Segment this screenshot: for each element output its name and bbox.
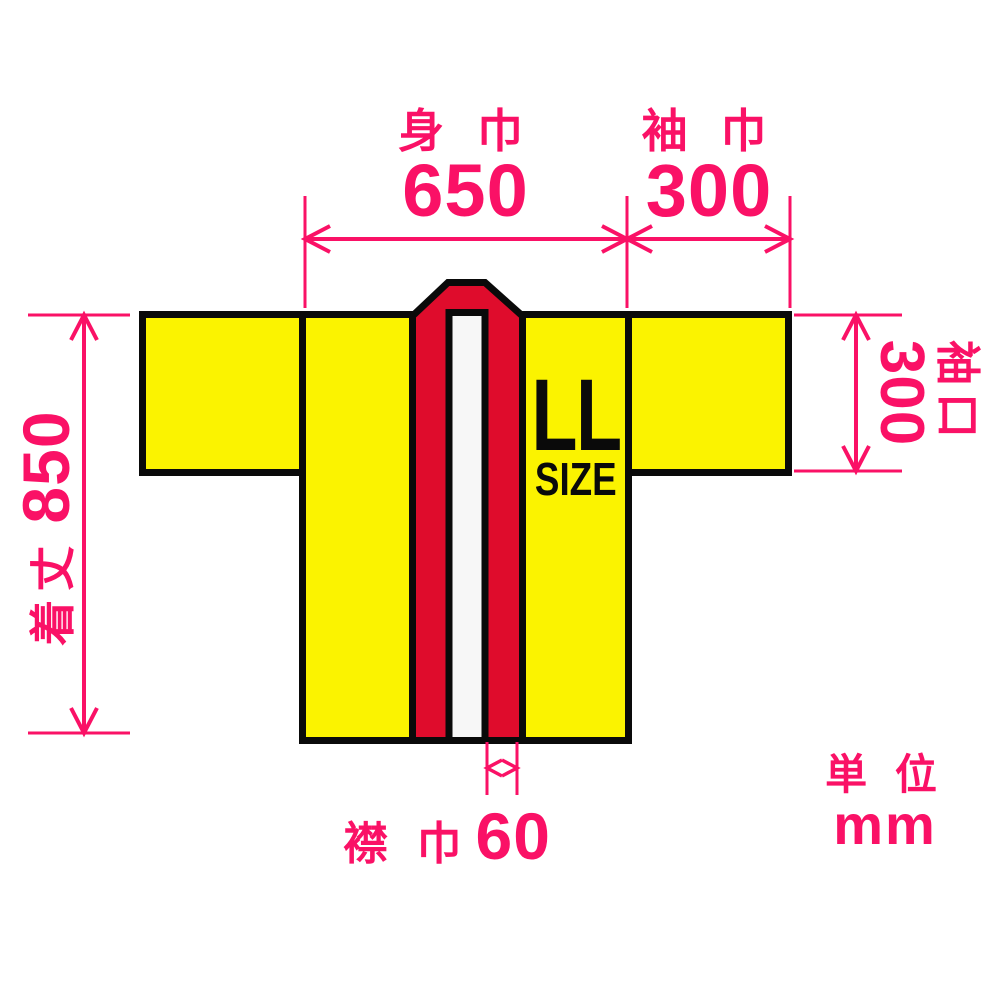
size-badge-suffix: SIZE (535, 458, 617, 500)
garment-length-name: 着丈 (27, 538, 79, 646)
garment (143, 283, 789, 741)
body-width-value: 650 (303, 158, 628, 224)
unit-label: 単 位 mm (820, 750, 950, 850)
collar-width-name: 襟 巾 (343, 818, 470, 869)
sleeve-opening-name: 袖口 (930, 340, 984, 446)
garment-length-label: 着丈850 (8, 410, 84, 645)
size-badge: LL SIZE (516, 372, 637, 500)
sleeve-opening-label: 袖口 300 (872, 340, 984, 446)
size-badge-size: LL (531, 372, 620, 458)
sleeve-width-value: 300 (627, 158, 791, 224)
body-width-label: 身 巾 650 (303, 104, 628, 224)
unit-value: mm (820, 800, 950, 850)
left-sleeve (143, 315, 304, 473)
happi-coat-size-diagram: 身 巾 650 袖 巾 300 着丈850 袖口 300 襟 巾60 単 位 m… (0, 0, 1000, 1000)
collar-stripe (449, 313, 485, 741)
sleeve-width-label: 袖 巾 300 (627, 104, 791, 224)
arrowhead-left (487, 760, 502, 776)
collar-width-value: 60 (476, 799, 551, 873)
garment-length-value: 850 (9, 410, 83, 523)
right-sleeve (629, 315, 789, 473)
sleeve-opening-value: 300 (872, 340, 930, 446)
collar-width-dimension (487, 742, 517, 795)
collar-width-label: 襟 巾60 (343, 798, 551, 874)
arrowhead-right (502, 760, 517, 776)
